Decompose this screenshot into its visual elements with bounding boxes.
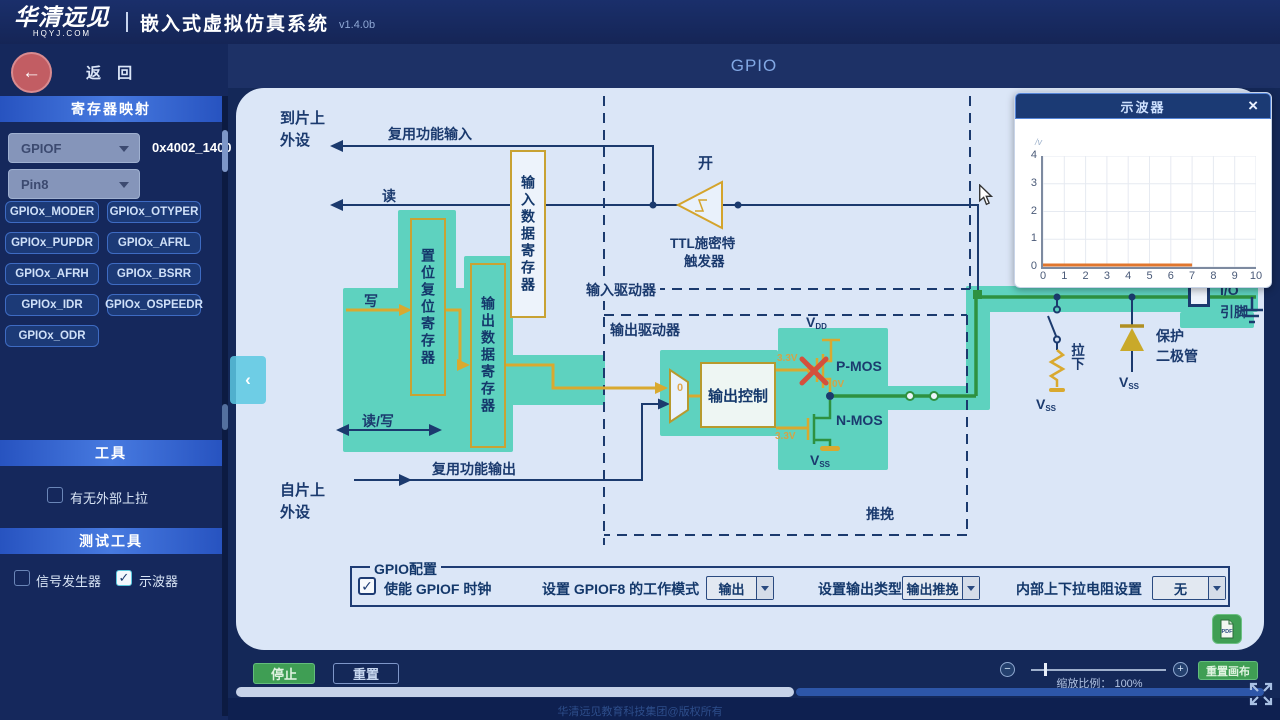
- register-button-pupdr[interactable]: GPIOx_PUPDR: [5, 232, 99, 254]
- write-label: 写: [364, 291, 378, 311]
- reset-canvas-button[interactable]: 重置画布: [1198, 661, 1258, 680]
- pin-select[interactable]: Pin8: [8, 169, 140, 199]
- left-sidebar: ← 返 回 寄存器映射 GPIOF 0x4002_1400 Pin8 GPIOx…: [0, 44, 228, 720]
- external-pullup-checkbox[interactable]: [47, 487, 63, 503]
- sidebar-scrollbar-thumb[interactable]: [222, 130, 228, 172]
- enable-clock-label: 使能 GPIOF 时钟: [384, 579, 491, 599]
- oscilloscope-checkbox[interactable]: [116, 570, 132, 586]
- pmos-label: P-MOS: [836, 358, 882, 374]
- io-pin-symbol: [1188, 285, 1210, 307]
- vdd-label: VDD: [806, 314, 827, 331]
- register-button-afrl[interactable]: GPIOx_AFRL: [107, 232, 201, 254]
- y-axis-unit: /v: [1035, 137, 1042, 147]
- app-title: 嵌入式虚拟仿真系统: [140, 9, 329, 36]
- chevron-down-icon: [119, 182, 129, 188]
- output-driver-label: 输出驱动器: [610, 320, 680, 340]
- pull-down-label: 拉下: [1066, 343, 1086, 381]
- port-address: 0x4002_1400: [152, 140, 232, 155]
- back-label[interactable]: 返 回: [86, 62, 138, 83]
- type-dropdown-value: 输出推挽: [903, 577, 962, 599]
- pdf-icon: PDF: [1218, 619, 1236, 639]
- register-button-odr[interactable]: GPIOx_ODR: [5, 325, 99, 347]
- mode-label: 设置 GPIOF8 的工作模式: [542, 579, 699, 599]
- chevron-left-icon: ‹: [245, 370, 251, 390]
- svg-text:PDF: PDF: [1222, 629, 1234, 635]
- input-driver-label: 输入驱动器: [582, 279, 660, 301]
- sidebar-scrollbar-thumb2[interactable]: [222, 404, 228, 430]
- chevron-down-icon: [119, 146, 129, 152]
- mode-dropdown-value: 输出: [707, 577, 756, 599]
- chevron-down-icon: [756, 577, 773, 599]
- oscilloscope-title: 示波器: [1120, 97, 1165, 116]
- from-chip-label: 自片上外设: [280, 480, 340, 524]
- chevron-down-icon: [1208, 577, 1225, 599]
- app-window: 华清远见 HQYJ.COM 嵌入式虚拟仿真系统 v1.4.0b ← 返 回 寄存…: [0, 0, 1280, 720]
- zoom-slider-track[interactable]: [1031, 669, 1166, 671]
- export-pdf-button[interactable]: PDF: [1212, 614, 1242, 644]
- page-title: GPIO: [228, 44, 1280, 88]
- port-select[interactable]: GPIOF: [8, 133, 140, 163]
- register-button-bsrr[interactable]: GPIOx_BSRR: [107, 263, 201, 285]
- reset-button[interactable]: 重置: [333, 663, 399, 684]
- register-button-otyper[interactable]: GPIOx_OTYPER: [107, 201, 201, 223]
- fullscreen-icon[interactable]: [1246, 680, 1276, 713]
- read-write-label: 读/写: [362, 411, 394, 431]
- horizontal-scrollbar-track[interactable]: [796, 688, 1264, 696]
- y-axis-labels: 01234: [1019, 156, 1037, 267]
- signal-generator-label: 信号发生器: [36, 571, 101, 590]
- mode-dropdown[interactable]: 输出: [706, 576, 774, 600]
- back-button[interactable]: ←: [11, 52, 52, 93]
- vss-diode-label: VSS: [1119, 374, 1139, 391]
- vss-pulldown-label: VSS: [1036, 396, 1056, 413]
- ttl-label-2: 触发器: [684, 250, 725, 270]
- logo-text: 华清远见: [14, 6, 110, 29]
- protect-diode-label-2: 二极管: [1156, 346, 1198, 366]
- enable-clock-checkbox[interactable]: [358, 577, 376, 595]
- close-icon[interactable]: ×: [1248, 96, 1260, 116]
- footer-band: [228, 698, 1280, 720]
- register-button-idr[interactable]: GPIOx_IDR: [5, 294, 99, 316]
- brand-logo: 华清远见 HQYJ.COM: [14, 6, 110, 38]
- main-topbar: GPIO: [228, 44, 1280, 88]
- header-separator: [126, 12, 128, 32]
- signal-generator-checkbox[interactable]: [14, 570, 30, 586]
- pull-dropdown-value: 无: [1153, 577, 1208, 599]
- chevron-down-icon: [962, 577, 979, 599]
- set-reset-register-box: 置位复位寄存器: [410, 218, 446, 396]
- read-label: 读: [382, 186, 396, 206]
- register-button-moder[interactable]: GPIOx_MODER: [5, 201, 99, 223]
- zoom-out-button[interactable]: −: [1000, 662, 1015, 677]
- horizontal-scrollbar-thumb[interactable]: [236, 687, 794, 697]
- nmos-label: N-MOS: [836, 412, 883, 428]
- pull-dropdown[interactable]: 无: [1152, 576, 1226, 600]
- oscilloscope-panel: 示波器 × /v 01234 012345678910: [1014, 92, 1272, 288]
- input-data-register-box: 输入数据寄存器: [510, 150, 546, 318]
- gpio-config-legend: GPIO配置: [370, 558, 441, 580]
- register-map-header: 寄存器映射: [0, 96, 222, 122]
- app-header: 华清远见 HQYJ.COM 嵌入式虚拟仿真系统 v1.4.0b: [0, 0, 1280, 44]
- sidebar-collapse-tab[interactable]: ‹: [230, 356, 266, 404]
- app-version: v1.4.0b: [339, 19, 375, 31]
- oscilloscope-titlebar[interactable]: 示波器 ×: [1015, 93, 1271, 119]
- oscilloscope-plot: [1041, 156, 1256, 269]
- register-button-afrh[interactable]: GPIOx_AFRH: [5, 263, 99, 285]
- oscilloscope-label: 示波器: [139, 571, 178, 590]
- pull-label: 内部上下拉电阻设置: [1016, 579, 1142, 599]
- test-tools-header: 测试工具: [0, 528, 222, 554]
- switch-on-label: 开: [698, 152, 713, 173]
- copyright-text: 华清远见教育科技集团@版权所有: [557, 703, 722, 719]
- to-chip-label: 到片上外设: [280, 108, 340, 152]
- pin-select-value: Pin8: [21, 177, 48, 192]
- logo-domain: HQYJ.COM: [14, 30, 110, 38]
- protect-diode-label-1: 保护: [1156, 326, 1184, 346]
- output-control-box: 输出控制: [700, 362, 776, 428]
- tools-header: 工具: [0, 440, 222, 466]
- register-button-ospeedr[interactable]: GPIOx_OSPEEDR: [107, 294, 201, 316]
- alt-func-output-label: 复用功能输出: [432, 459, 516, 479]
- vss-nmos-label: VSS: [810, 452, 830, 469]
- back-arrow-icon: ←: [22, 62, 41, 84]
- external-pullup-label: 有无外部上拉: [70, 488, 148, 507]
- v0-label: 0V: [832, 379, 844, 390]
- x-axis-labels: 012345678910: [1043, 270, 1256, 283]
- stop-button[interactable]: 停止: [253, 663, 315, 684]
- mux-select-label: 0: [677, 382, 683, 394]
- alt-func-input-label: 复用功能输入: [388, 124, 472, 144]
- v33-bottom-label: 3.3V: [775, 431, 796, 442]
- type-label: 设置输出类型: [818, 579, 902, 599]
- ttl-label-1: TTL施密特: [670, 232, 735, 252]
- output-data-register-box: 输出数据寄存器: [470, 263, 506, 448]
- io-pin-label-2: 引脚: [1220, 302, 1248, 322]
- v33-top-label: 3.3V: [777, 353, 798, 364]
- type-dropdown[interactable]: 输出推挽: [902, 576, 980, 600]
- push-pull-label: 推挽: [866, 504, 894, 524]
- port-select-value: GPIOF: [21, 141, 61, 156]
